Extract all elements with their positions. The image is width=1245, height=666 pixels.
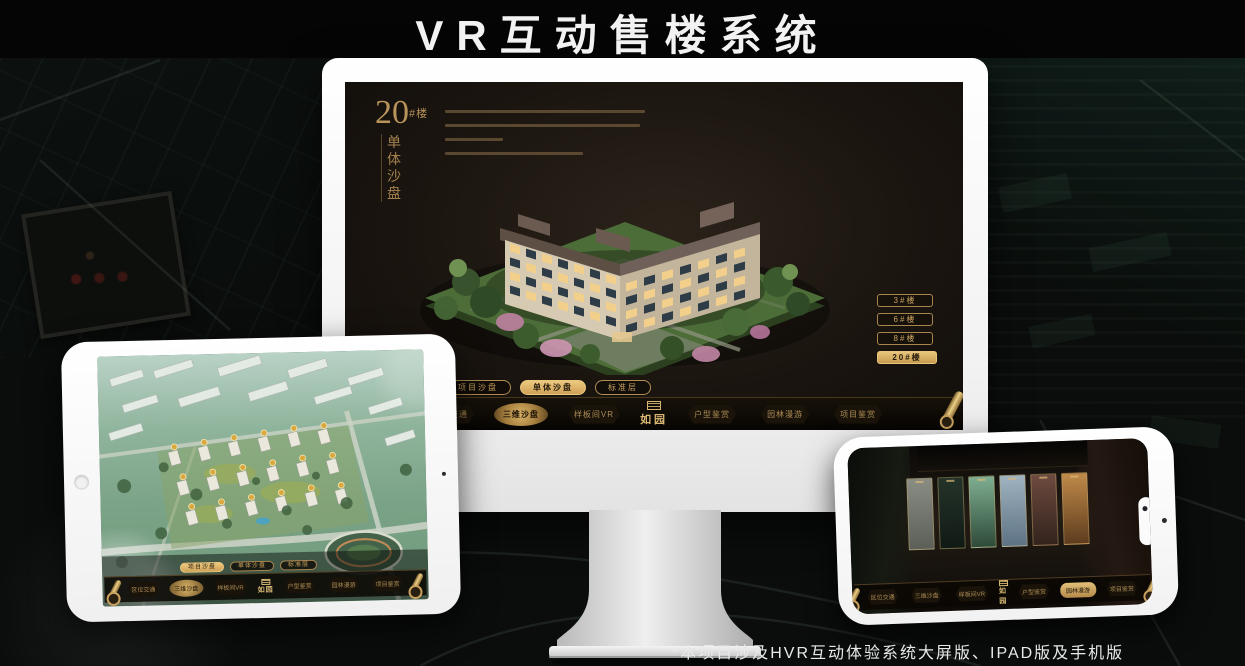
menu-item-garden-tour[interactable]: 园林漫游 bbox=[756, 405, 814, 424]
phone-menu-item-garden-tour[interactable]: 园林漫游 bbox=[1060, 582, 1097, 598]
floor-button-8[interactable]: 8#楼 bbox=[877, 332, 933, 345]
building-model-3d[interactable] bbox=[400, 140, 850, 375]
scene-card-5[interactable] bbox=[1030, 473, 1058, 546]
scene-card-2[interactable] bbox=[937, 476, 965, 549]
scene-card-1[interactable] bbox=[906, 478, 934, 551]
home-button[interactable] bbox=[74, 474, 89, 489]
brand-logo: 如园 bbox=[640, 401, 668, 427]
footnote-text: *本项目涉及HVR互动体验系统大屏版、IPAD版及手机版 bbox=[672, 639, 1124, 663]
tablet-brand-logo-text: 如园 bbox=[258, 584, 274, 594]
menu-item-unit-gallery[interactable]: 户型鉴赏 bbox=[683, 405, 741, 424]
phone-menu-item-unit-gallery[interactable]: 户型鉴赏 bbox=[1016, 583, 1053, 599]
phone-screen: 区位交通 三维沙盘 样板间VR 如园 户型鉴赏 园林漫游 项目鉴赏 bbox=[847, 438, 1153, 614]
phone-device: 区位交通 三维沙盘 样板间VR 如园 户型鉴赏 园林漫游 项目鉴赏 bbox=[833, 426, 1179, 626]
phone-menu-item-project-gallery[interactable]: 项目鉴赏 bbox=[1104, 580, 1141, 596]
tablet-menu-item-transport[interactable]: 区位交通 bbox=[125, 581, 161, 597]
menu-item-project-gallery[interactable]: 项目鉴赏 bbox=[829, 405, 887, 424]
tablet-tab-standard-floor[interactable]: 标准层 bbox=[280, 560, 317, 571]
scene-card-3[interactable] bbox=[968, 475, 996, 548]
floor-button-6[interactable]: 6#楼 bbox=[877, 313, 933, 326]
tablet-scroll-right-icon[interactable] bbox=[409, 572, 424, 594]
building-number-suffix: #楼 bbox=[409, 108, 428, 120]
floor-button-20[interactable]: 20#楼 bbox=[877, 351, 937, 364]
phone-menu-item-transport[interactable]: 区位交通 bbox=[864, 589, 901, 605]
tablet-brand-logo: 如园 bbox=[257, 578, 273, 594]
view-tab-group: 项目沙盘 单体沙盘 标准层 bbox=[445, 380, 651, 395]
phone-scroll-left-icon[interactable] bbox=[847, 587, 861, 609]
tablet-menu-item-project-gallery[interactable]: 项目鉴赏 bbox=[369, 576, 405, 592]
phone-brand-logo-text: 如园 bbox=[999, 585, 1009, 605]
phone-scroll-right-icon[interactable] bbox=[1143, 576, 1152, 598]
phone-notch bbox=[1138, 497, 1153, 545]
floor-button-group: 3#楼 6#楼 8#楼 20#楼 bbox=[877, 294, 937, 364]
tablet-camera-dot bbox=[442, 472, 446, 476]
tablet-menu-item-garden-tour[interactable]: 园林漫游 bbox=[325, 577, 361, 593]
tablet-menu-item-3d-sandbox[interactable]: 三维沙盘 bbox=[169, 579, 203, 597]
phone-brand-logo: 如园 bbox=[999, 579, 1009, 605]
phone-menu-item-3d-sandbox[interactable]: 三维沙盘 bbox=[908, 587, 945, 603]
tab-single-sandbox[interactable]: 单体沙盘 bbox=[520, 380, 586, 395]
tablet-screen: 项目沙盘 单体沙盘 标准层 区位交通 三维沙盘 样板间VR 如园 户型鉴赏 园林… bbox=[97, 349, 429, 606]
floor-button-3[interactable]: 3#楼 bbox=[877, 294, 933, 307]
tablet-device: 项目沙盘 单体沙盘 标准层 区位交通 三维沙盘 样板间VR 如园 户型鉴赏 园林… bbox=[61, 334, 461, 623]
phone-menu-item-showroom-vr[interactable]: 样板间VR bbox=[952, 586, 991, 602]
tablet-menu-item-showroom-vr[interactable]: 样板间VR bbox=[211, 579, 250, 595]
menu-item-showroom-vr[interactable]: 样板间VR bbox=[563, 405, 625, 424]
tablet-tab-project-sandbox[interactable]: 项目沙盘 bbox=[180, 562, 224, 573]
page-title: VR互动售楼系统 bbox=[0, 2, 1245, 63]
tablet-menu-item-unit-gallery[interactable]: 户型鉴赏 bbox=[281, 578, 317, 594]
building-subtitle-vertical: 单体沙盘 bbox=[381, 134, 397, 202]
poster-stage: VR互动售楼系统 20#楼 单体沙盘 bbox=[0, 0, 1245, 666]
phone-scene-ceiling-beam bbox=[917, 440, 1088, 472]
scene-card-strip bbox=[906, 472, 1089, 550]
tab-standard-floor[interactable]: 标准层 bbox=[595, 380, 651, 395]
tablet-scroll-left-icon[interactable] bbox=[107, 579, 122, 601]
building-number: 20 bbox=[375, 94, 409, 131]
seal-icon bbox=[647, 401, 661, 410]
scene-card-6[interactable] bbox=[1061, 472, 1089, 545]
tablet-tab-single-sandbox[interactable]: 单体沙盘 bbox=[230, 561, 274, 572]
menu-item-3d-sandbox[interactable]: 三维沙盘 bbox=[494, 403, 548, 426]
brand-logo-text: 如园 bbox=[640, 411, 668, 427]
phone-camera-dot bbox=[1162, 518, 1167, 523]
scene-card-4[interactable] bbox=[999, 474, 1027, 547]
